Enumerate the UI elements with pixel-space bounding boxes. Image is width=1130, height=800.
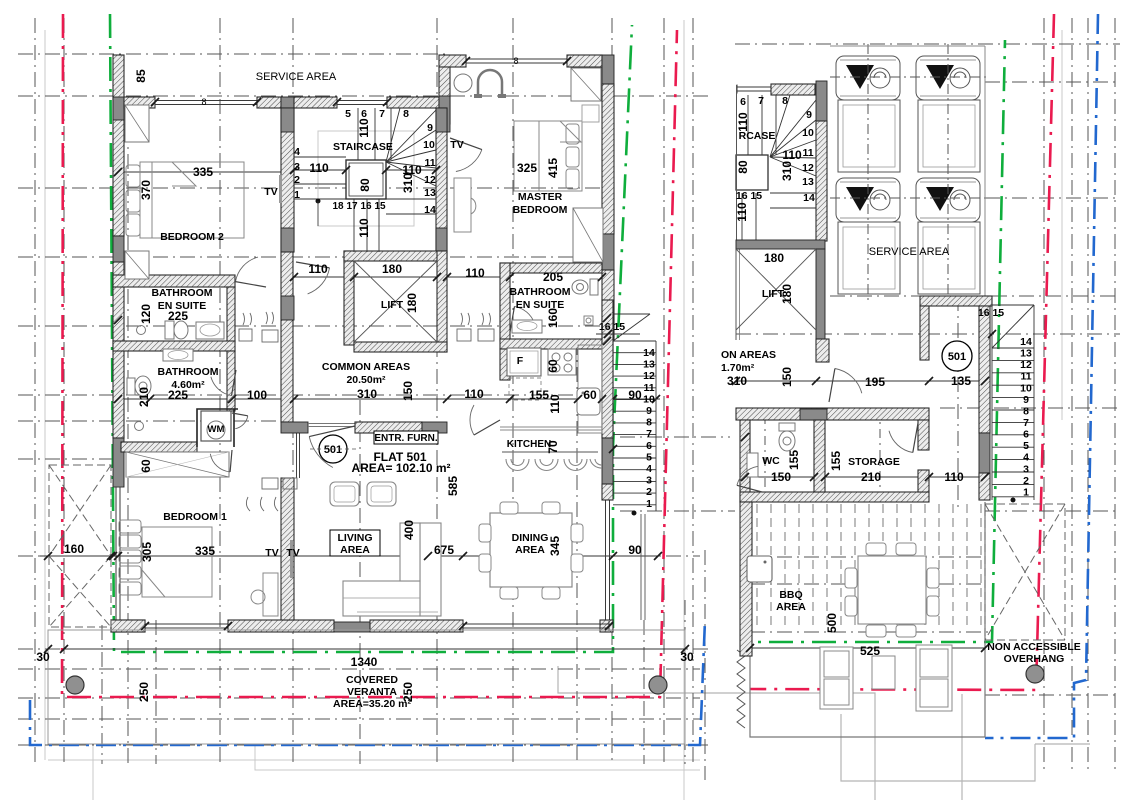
svg-text:3: 3 [1023, 463, 1029, 475]
svg-text:180: 180 [405, 293, 419, 313]
svg-text:6: 6 [1023, 429, 1029, 441]
svg-text:12: 12 [802, 162, 814, 174]
svg-text:11: 11 [643, 382, 654, 394]
svg-text:250: 250 [137, 682, 151, 702]
svg-text:11: 11 [802, 147, 813, 159]
svg-text:20.50m²: 20.50m² [346, 374, 386, 386]
svg-text:9: 9 [806, 109, 812, 121]
svg-text:14: 14 [1020, 336, 1032, 348]
svg-text:8: 8 [782, 95, 788, 107]
svg-text:90: 90 [628, 543, 642, 557]
svg-text:155: 155 [529, 388, 549, 402]
svg-text:310: 310 [780, 161, 794, 181]
svg-text:AREA: AREA [340, 544, 370, 556]
svg-text:NON ACCESSIBLE: NON ACCESSIBLE [987, 641, 1081, 653]
svg-text:110: 110 [402, 163, 422, 177]
svg-text:110: 110 [308, 262, 328, 276]
svg-text:501: 501 [324, 444, 342, 456]
svg-text:13: 13 [802, 176, 814, 188]
svg-text:110: 110 [357, 218, 371, 238]
svg-text:10: 10 [643, 393, 655, 405]
svg-text:400: 400 [402, 520, 416, 540]
svg-text:335: 335 [195, 544, 215, 558]
svg-text:1: 1 [1023, 486, 1029, 498]
svg-text:60: 60 [583, 388, 597, 402]
svg-text:TV: TV [450, 139, 463, 151]
svg-text:155: 155 [787, 450, 801, 470]
svg-text:8: 8 [1023, 405, 1029, 417]
svg-text:7: 7 [379, 108, 385, 120]
svg-text:2: 2 [646, 486, 652, 498]
svg-text:310: 310 [357, 387, 377, 401]
svg-text:14: 14 [643, 347, 655, 359]
svg-text:LIVING: LIVING [337, 532, 372, 544]
svg-text:150: 150 [401, 381, 415, 401]
svg-text:110: 110 [548, 394, 562, 414]
svg-text:OVERHANG: OVERHANG [1004, 653, 1065, 665]
svg-text:135: 135 [951, 374, 971, 388]
svg-text:205: 205 [543, 270, 563, 284]
svg-text:6: 6 [646, 440, 652, 452]
svg-text:225: 225 [168, 309, 188, 323]
svg-text:7: 7 [758, 95, 764, 107]
svg-text:150: 150 [771, 470, 791, 484]
svg-text:LIFT: LIFT [381, 299, 404, 311]
svg-text:325: 325 [517, 161, 537, 175]
svg-text:8: 8 [513, 56, 518, 66]
svg-text:525: 525 [860, 644, 880, 658]
svg-text:370: 370 [139, 180, 153, 200]
svg-text:110: 110 [944, 470, 964, 484]
svg-text:4: 4 [1023, 452, 1029, 464]
svg-text:12: 12 [424, 174, 436, 186]
svg-text:MASTER: MASTER [518, 191, 563, 203]
svg-text:DINING: DINING [512, 532, 549, 544]
svg-text:1340: 1340 [351, 655, 378, 669]
svg-text:110: 110 [464, 387, 484, 401]
svg-text:90: 90 [628, 388, 642, 402]
svg-text:110: 110 [736, 112, 750, 132]
svg-text:12: 12 [1020, 359, 1032, 371]
svg-text:BBQ: BBQ [779, 589, 802, 601]
svg-text:SERVICE AREA: SERVICE AREA [256, 71, 337, 83]
svg-text:15: 15 [374, 201, 386, 212]
svg-text:BEDROOM 2: BEDROOM 2 [160, 231, 224, 243]
svg-text:17: 17 [346, 201, 358, 212]
svg-text:11: 11 [1020, 371, 1031, 383]
svg-text:14: 14 [424, 204, 436, 216]
svg-text:225: 225 [168, 388, 188, 402]
svg-text:STORAGE: STORAGE [848, 456, 900, 468]
svg-text:100: 100 [247, 388, 267, 402]
svg-text:18: 18 [332, 201, 344, 212]
svg-text:120: 120 [139, 304, 153, 324]
svg-text:9: 9 [1023, 394, 1029, 406]
svg-text:16 15: 16 15 [978, 307, 1004, 319]
svg-text:110: 110 [782, 148, 802, 162]
svg-text:155: 155 [829, 451, 843, 471]
svg-text:10: 10 [802, 127, 814, 139]
svg-text:5: 5 [1023, 440, 1029, 452]
svg-text:85: 85 [134, 69, 148, 83]
svg-text:AREA: AREA [515, 544, 545, 556]
svg-text:250: 250 [401, 682, 415, 702]
svg-text:80: 80 [358, 178, 372, 192]
svg-text:110: 110 [309, 161, 329, 175]
svg-text:16 15: 16 15 [599, 321, 625, 333]
svg-text:2: 2 [294, 174, 300, 186]
svg-text:415: 415 [546, 158, 560, 178]
svg-text:BATHROOM: BATHROOM [157, 366, 218, 378]
svg-text:STAIRCASE: STAIRCASE [333, 141, 393, 153]
svg-text:210: 210 [861, 470, 881, 484]
svg-text:KITCHEN: KITCHEN [507, 439, 551, 450]
svg-text:BEDROOM: BEDROOM [513, 204, 568, 216]
svg-text:1: 1 [294, 189, 300, 201]
svg-text:500: 500 [825, 613, 839, 633]
svg-text:60: 60 [139, 459, 153, 473]
svg-text:13: 13 [1020, 348, 1032, 360]
svg-text:TV: TV [264, 186, 277, 198]
svg-text:BATHROOM: BATHROOM [151, 287, 212, 299]
svg-text:5: 5 [646, 451, 652, 463]
svg-text:150: 150 [780, 367, 794, 387]
svg-text:110: 110 [357, 118, 371, 138]
svg-text:210: 210 [137, 387, 151, 407]
svg-text:BATHROOM: BATHROOM [509, 286, 570, 298]
svg-text:AREA: AREA [776, 601, 806, 613]
svg-text:8: 8 [646, 417, 652, 429]
svg-text:6: 6 [361, 108, 367, 120]
svg-text:ENTR. FURN.: ENTR. FURN. [374, 433, 438, 444]
svg-text:160: 160 [546, 308, 560, 328]
svg-text:2: 2 [1023, 475, 1029, 487]
svg-text:13: 13 [424, 187, 436, 199]
svg-text:9: 9 [646, 405, 652, 417]
svg-text:COVERED: COVERED [346, 674, 398, 686]
svg-text:16: 16 [360, 201, 372, 212]
svg-text:310: 310 [727, 374, 747, 388]
svg-text:5: 5 [345, 108, 351, 120]
svg-text:WC: WC [762, 455, 780, 467]
svg-text:9: 9 [427, 122, 433, 134]
svg-text:1.70m²: 1.70m² [721, 362, 755, 374]
svg-text:10: 10 [423, 139, 435, 151]
svg-text:30: 30 [680, 650, 694, 664]
svg-text:160: 160 [64, 542, 84, 556]
svg-text:F: F [517, 355, 524, 367]
svg-text:8: 8 [403, 108, 409, 120]
svg-text:4: 4 [646, 463, 652, 475]
svg-text:180: 180 [764, 251, 784, 265]
svg-text:ON AREAS: ON AREAS [721, 349, 776, 361]
svg-text:30: 30 [36, 650, 50, 664]
svg-text:13: 13 [643, 359, 655, 371]
svg-text:345: 345 [548, 536, 562, 556]
svg-text:305: 305 [140, 542, 154, 562]
svg-text:VERANTA: VERANTA [347, 686, 397, 698]
svg-text:180: 180 [780, 284, 794, 304]
svg-text:WM: WM [208, 424, 225, 435]
svg-text:70: 70 [546, 440, 560, 454]
svg-text:80: 80 [736, 160, 750, 174]
svg-text:AREA=35.20 m²: AREA=35.20 m² [333, 698, 411, 710]
svg-text:675: 675 [434, 543, 454, 557]
svg-text:180: 180 [382, 262, 402, 276]
svg-text:10: 10 [1020, 382, 1032, 394]
svg-text:110: 110 [735, 202, 749, 222]
svg-text:195: 195 [865, 375, 885, 389]
svg-text:335: 335 [193, 165, 213, 179]
svg-text:16 15: 16 15 [736, 190, 762, 202]
svg-text:60: 60 [546, 359, 560, 373]
svg-text:COMMON AREAS: COMMON AREAS [322, 361, 410, 373]
svg-text:AREA= 102.10 m²: AREA= 102.10 m² [351, 461, 450, 475]
svg-text:6: 6 [740, 96, 746, 108]
svg-text:11: 11 [424, 157, 435, 169]
svg-text:585: 585 [446, 476, 460, 496]
svg-text:TV: TV [286, 547, 299, 559]
svg-text:8: 8 [201, 97, 206, 107]
svg-text:4: 4 [294, 146, 300, 158]
svg-text:14: 14 [803, 192, 815, 204]
svg-text:3: 3 [294, 161, 300, 173]
svg-text:7: 7 [646, 428, 652, 440]
svg-text:12: 12 [643, 370, 655, 382]
svg-text:TV: TV [265, 547, 278, 559]
svg-text:SERVICE AREA: SERVICE AREA [869, 246, 950, 258]
svg-text:501: 501 [948, 351, 966, 363]
svg-text:110: 110 [465, 266, 485, 280]
svg-text:3: 3 [646, 475, 652, 487]
svg-text:BEDROOM 1: BEDROOM 1 [163, 511, 227, 523]
svg-text:1: 1 [646, 498, 652, 510]
svg-text:7: 7 [1023, 417, 1029, 429]
